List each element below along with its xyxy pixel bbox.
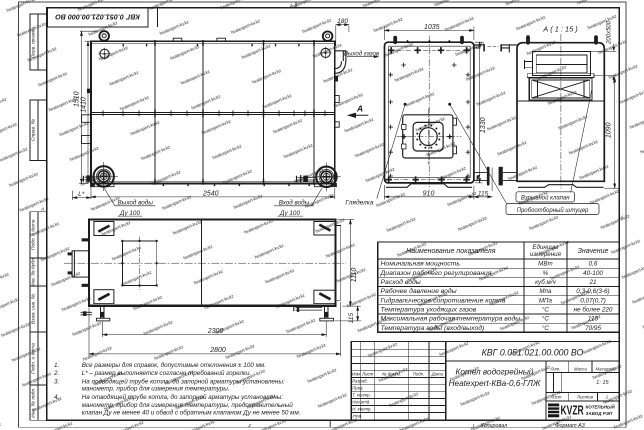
svg-text:2300: 2300 [207, 328, 224, 335]
svg-text:2540: 2540 [202, 190, 219, 197]
svg-text:Котел водогрейный: Котел водогрейный [456, 367, 534, 376]
svg-text:40-100: 40-100 [583, 270, 603, 277]
svg-text:2: 2 [247, 423, 251, 428]
svg-text:не более 220: не более 220 [573, 306, 612, 314]
svg-text:Heatexpert-КВа-0,6-ГЛЖ: Heatexpert-КВа-0,6-ГЛЖ [449, 379, 541, 388]
svg-text:°С: °С [542, 325, 549, 332]
svg-text:KVZR: KVZR [561, 403, 585, 418]
svg-text:Подп. и дата: Подп. и дата [31, 343, 37, 374]
svg-text:Копировал: Копировал [480, 423, 507, 429]
svg-text:Максимальная рабочая температу: Максимальная рабочая температура воды [381, 315, 521, 323]
svg-text:КВГ 0.051.021.00.000 ВО: КВГ 0.051.021.00.000 ВО [55, 13, 140, 22]
svg-text:Расход воды: Расход воды [381, 278, 421, 286]
svg-text:Температура уходящих газов: Температура уходящих газов [381, 306, 477, 314]
svg-text:1: 1 [473, 423, 475, 428]
svg-text:МВт: МВт [538, 261, 552, 268]
svg-text:А: А [356, 104, 363, 114]
svg-text:Инв. № дубл.: Инв. № дубл. [31, 257, 37, 287]
svg-text:2800: 2800 [209, 347, 226, 354]
svg-text:1110: 1110 [351, 268, 358, 283]
svg-text:Нач.отд.: Нач.отд. [352, 400, 370, 405]
svg-text:Гляделка: Гляделка [345, 198, 373, 206]
svg-text:1.: 1. [54, 362, 59, 369]
svg-text:%: % [543, 270, 549, 277]
svg-text:куб.м/ч: куб.м/ч [535, 279, 556, 286]
svg-text:Лист: Лист [361, 372, 373, 377]
svg-text:Формат А3: Формат А3 [555, 423, 585, 429]
svg-text:Т. контр.: Т. контр. [352, 393, 371, 398]
svg-text:Единицы: Единицы [532, 244, 558, 251]
svg-text:1090: 1090 [606, 122, 613, 138]
svg-text:0,6: 0,6 [589, 261, 598, 268]
svg-text:Пробоотборный штуцер: Пробоотборный штуцер [517, 207, 589, 214]
svg-text:Справ. №: Справ. № [31, 119, 37, 141]
svg-text:4.: 4. [54, 394, 59, 401]
svg-text:манометр, прибор для измерения: манометр, прибор для измерения температу… [82, 401, 294, 409]
svg-text:Гидравлическое сопротивление к: Гидравлическое сопротивление котла [381, 296, 506, 304]
svg-text:Ду 100: Ду 100 [119, 210, 140, 217]
svg-text:Подп.: Подп. [413, 372, 424, 377]
svg-text:На отводящей трубе котла, до з: На отводящей трубе котла, до запорной ар… [82, 393, 284, 401]
svg-text:Наименование показателя: Наименование показателя [406, 248, 496, 255]
svg-text:115: 115 [478, 190, 489, 197]
svg-text:Пров.: Пров. [352, 386, 363, 391]
svg-text:Н. контр.: Н. контр. [352, 407, 371, 412]
svg-text:Рабочее давление воды: Рабочее давление воды [381, 287, 457, 295]
svg-text:Выход газов: Выход газов [344, 51, 379, 57]
svg-text:Номинальная мощность: Номинальная мощность [381, 261, 461, 268]
svg-text:Взрывной клапан: Взрывной клапан [521, 195, 570, 202]
svg-text:Все размеры для справок, допус: Все размеры для справок, допустимые откл… [82, 361, 266, 369]
svg-text:Выход воды: Выход воды [117, 199, 153, 207]
svg-text:°С: °С [542, 316, 549, 323]
svg-text:1035: 1035 [424, 24, 440, 31]
svg-text:А: А [40, 207, 44, 212]
svg-text:3.: 3. [54, 378, 59, 385]
svg-text:°С: °С [542, 307, 549, 314]
svg-text:Взам. инв. №: Взам. инв. № [31, 294, 37, 324]
svg-text:МПа: МПа [539, 297, 553, 304]
svg-text:КОТЕЛЬНЫЙ: КОТЕЛЬНЫЙ [586, 402, 616, 409]
svg-text:Изм: Изм [352, 372, 360, 377]
svg-text:ЗАВОД РЭП: ЗАВОД РЭП [586, 411, 613, 416]
svg-text:На подводящей трубе котла, до: На подводящей трубе котла, до запорной а… [82, 377, 285, 385]
svg-text:Листов: Листов [576, 395, 593, 400]
svg-text:измерения: измерения [530, 251, 562, 258]
svg-text:0,3-0,6(3-6): 0,3-0,6(3-6) [576, 288, 609, 295]
svg-text:21: 21 [588, 279, 597, 286]
svg-text:Ду 100: Ду 100 [279, 210, 300, 217]
svg-text:1510: 1510 [74, 91, 81, 107]
svg-text:Температура воды (вход/выход): Температура воды (вход/выход) [381, 324, 485, 332]
svg-text:А: А [619, 215, 623, 220]
svg-text:КВГ 0.051.021.00.000 ВО: КВГ 0.051.021.00.000 ВО [482, 348, 584, 358]
svg-text:1: 15: 1: 15 [596, 380, 609, 386]
svg-text:L* – размер выполняется соглас: L* – размер выполняется согласно требова… [82, 369, 252, 377]
svg-text:115: 115 [588, 316, 599, 323]
svg-text:Лист: Лист [549, 395, 561, 400]
svg-text:0,07(0,7): 0,07(0,7) [580, 297, 606, 304]
svg-text:Перв. примен.: Перв. примен. [31, 26, 37, 59]
svg-text:Вход воды: Вход воды [279, 199, 310, 207]
svg-text:Лит.: Лит. [549, 366, 560, 371]
svg-text:1330: 1330 [480, 117, 487, 133]
svg-text:70/95: 70/95 [585, 325, 601, 332]
svg-text:Дата: Дата [431, 372, 444, 377]
svg-text:№ докум.: № докум. [382, 372, 401, 377]
svg-text:1410: 1410 [81, 97, 88, 113]
svg-text:Значение: Значение [578, 248, 609, 255]
svg-text:115: 115 [348, 312, 355, 323]
svg-text:клапан Ду не менее 40 и обвод: клапан Ду не менее 40 и обвод с обратным… [82, 408, 301, 416]
svg-text:Диапазон рабочего регулировани: Диапазон рабочего регулирования [380, 269, 492, 277]
svg-text:Мпа: Мпа [539, 288, 552, 295]
svg-text:910: 910 [423, 190, 435, 197]
svg-text:Масштаб: Масштаб [596, 366, 617, 371]
svg-text:Инв. № подл.: Инв. № подл. [31, 387, 37, 417]
svg-text:манометр, прибор для измерения: манометр, прибор для измерения температу… [82, 385, 230, 393]
svg-text:180: 180 [337, 18, 348, 25]
svg-text:200х500: 200х500 [606, 20, 612, 45]
svg-text:L*: L* [78, 191, 85, 198]
svg-text:Утв.: Утв. [352, 414, 362, 419]
svg-text:Разраб.: Разраб. [352, 379, 368, 384]
svg-text:А ( 1 : 15 ): А ( 1 : 15 ) [542, 24, 578, 33]
svg-text:2.: 2. [53, 370, 59, 377]
svg-text:Подп. и дата: Подп. и дата [31, 219, 37, 250]
svg-text:Масса: Масса [574, 366, 587, 371]
